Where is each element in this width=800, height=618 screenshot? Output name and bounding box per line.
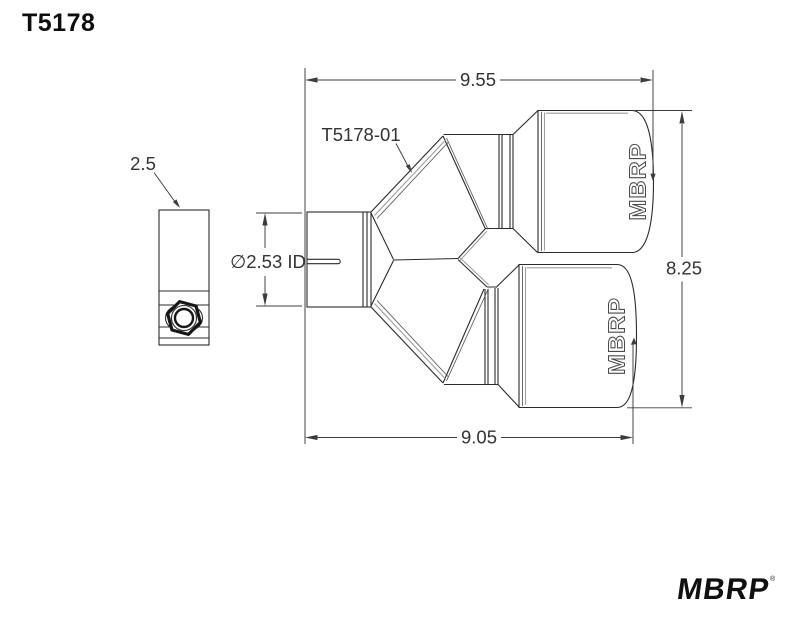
- junction-opening: [458, 229, 520, 288]
- clamp-bolt-circle: [175, 309, 193, 327]
- dimension-value: 8.25: [666, 258, 702, 279]
- lower-branch-seam: [375, 304, 447, 380]
- y-crotch-lines: [371, 213, 458, 306]
- upper-tip-logo: MBRP: [624, 143, 650, 221]
- arrow-down-icon: [679, 395, 684, 408]
- inlet-pipe: [307, 212, 371, 307]
- arrow-left-icon: [305, 435, 318, 440]
- arrow-right-icon: [641, 77, 654, 82]
- arrow-down-icon: [262, 294, 267, 307]
- brand-logo-text: MBRP: [675, 573, 772, 606]
- part-number-label: T5178-01: [321, 124, 400, 145]
- leader-line: [154, 173, 176, 203]
- arrow-up-icon: [262, 213, 267, 226]
- footer-brand-logo: MBRP ®: [675, 573, 776, 606]
- lower-branch-outline: [371, 288, 520, 408]
- clamp-size-label: 2.5: [130, 153, 156, 174]
- dimension-value: ∅2.53 ID: [230, 251, 306, 272]
- dimension-value: 9.05: [461, 427, 497, 448]
- dimension-inlet-diameter: ∅2.53 ID: [230, 213, 306, 306]
- clamp-side-view: [159, 210, 209, 345]
- drawing-page: T5178 MBRP MBRP: [0, 0, 800, 618]
- upper-branch-inner-lines: [377, 138, 488, 230]
- lower-tip: MBRP: [519, 265, 637, 408]
- label-clamp-size: 2.5: [130, 153, 180, 208]
- upper-tip: MBRP: [538, 111, 654, 253]
- leader-line: [396, 144, 410, 170]
- trademark-symbol: ®: [770, 575, 776, 583]
- label-part-number: T5178-01: [321, 124, 412, 173]
- arrow-up-icon: [679, 111, 684, 124]
- technical-drawing: T5178 MBRP MBRP: [0, 0, 800, 618]
- junction-seams: [460, 231, 489, 285]
- upper-branch-seam: [375, 140, 447, 216]
- page-title: T5178: [22, 9, 95, 37]
- lower-tip-logo: MBRP: [603, 297, 629, 375]
- lower-branch-inner-lines: [377, 291, 488, 382]
- y-pipe-body: [371, 111, 538, 408]
- arrow-right-icon: [621, 435, 634, 440]
- dimension-value: 9.55: [460, 69, 496, 90]
- arrow-left-icon: [305, 77, 318, 82]
